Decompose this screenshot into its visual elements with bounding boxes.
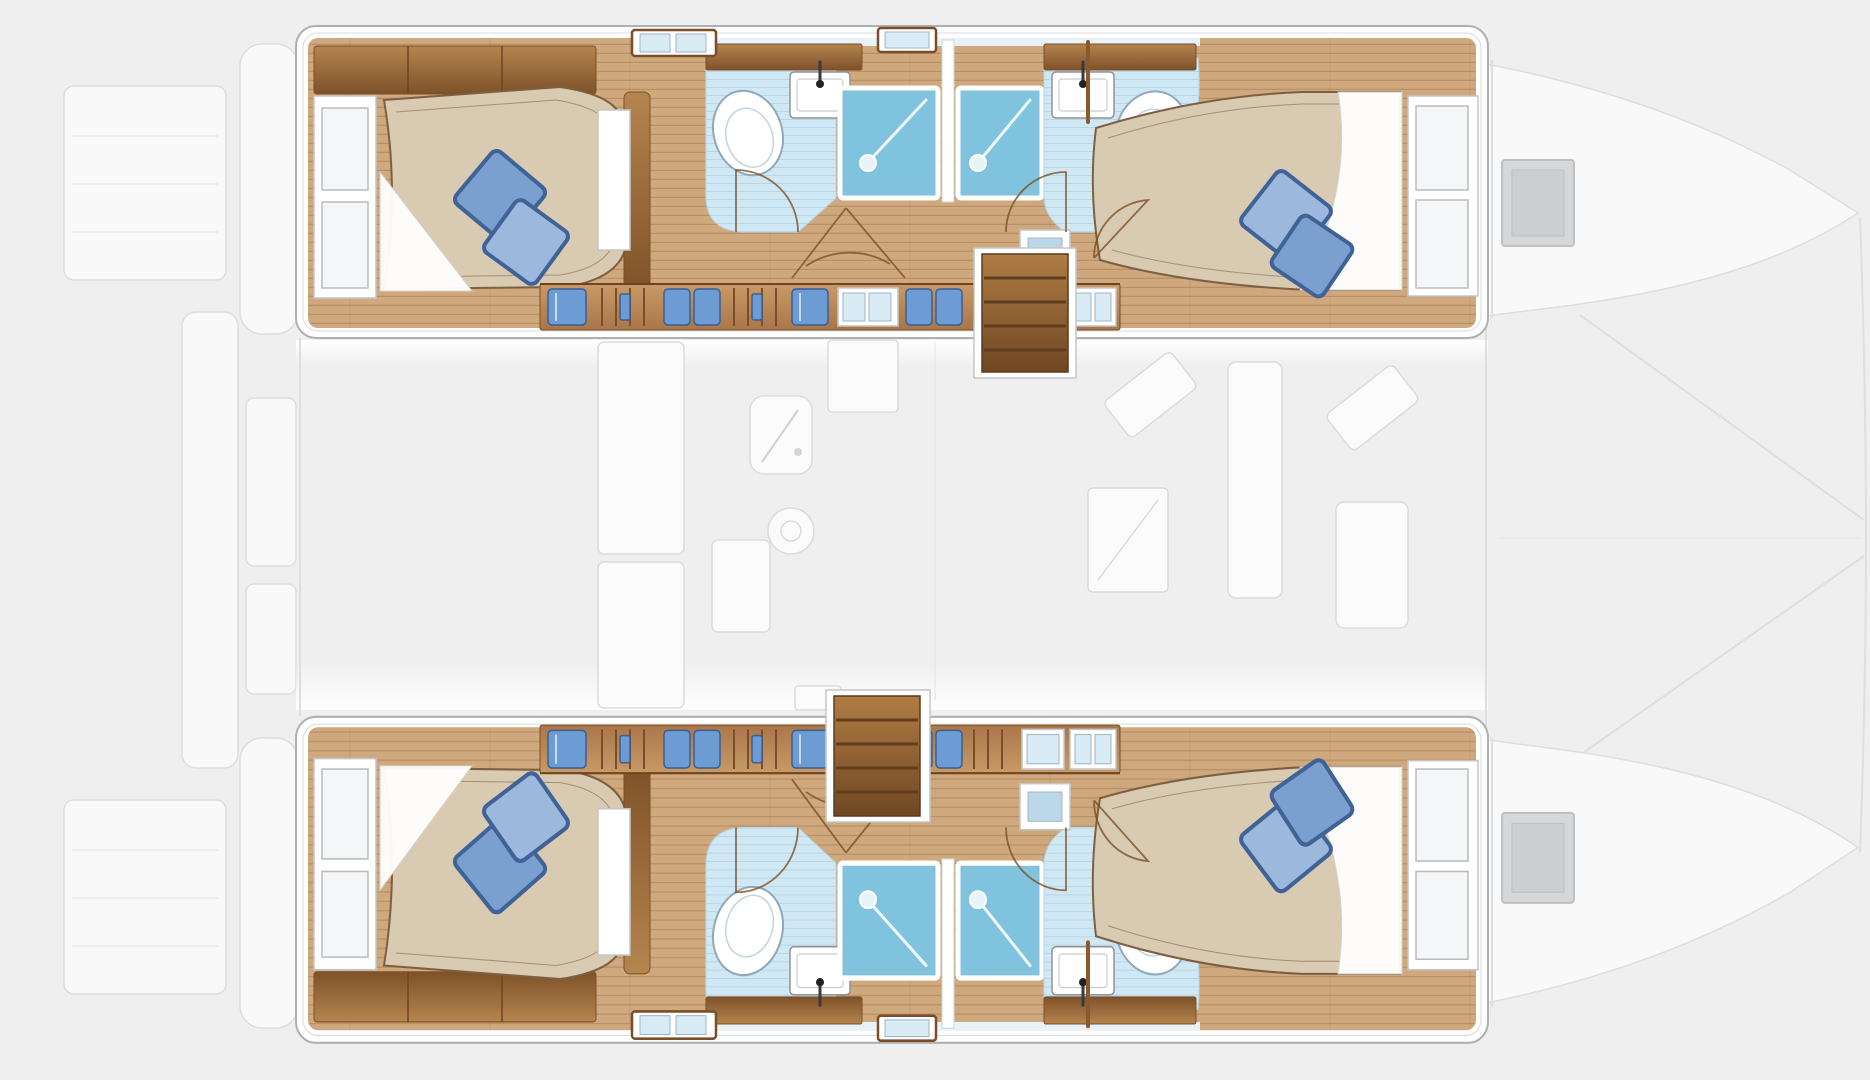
saloon-cabinet — [828, 340, 898, 412]
galley-hob — [768, 508, 814, 554]
galley-counter-fwd — [598, 342, 684, 554]
galley-island — [712, 540, 770, 632]
floor-plan-page — [0, 0, 1870, 1080]
swim-platform-top — [64, 86, 226, 280]
cockpit-bench — [182, 312, 238, 768]
galley-counter-aft — [598, 562, 684, 708]
nav-desk — [1088, 488, 1168, 592]
galley-sink — [750, 396, 812, 474]
transom-steps-bottom — [240, 738, 298, 1028]
cockpit-seat — [246, 584, 296, 694]
companionway-stairs-bottom — [826, 690, 930, 822]
cockpit-table — [246, 398, 296, 566]
companionway-stairs-top — [974, 248, 1076, 378]
settee-seat — [1336, 502, 1408, 628]
swim-platform-bottom — [64, 800, 226, 994]
catamaran-floor-plan — [0, 0, 1870, 1080]
transom-steps-top — [240, 44, 298, 334]
settee-back — [1228, 362, 1282, 598]
